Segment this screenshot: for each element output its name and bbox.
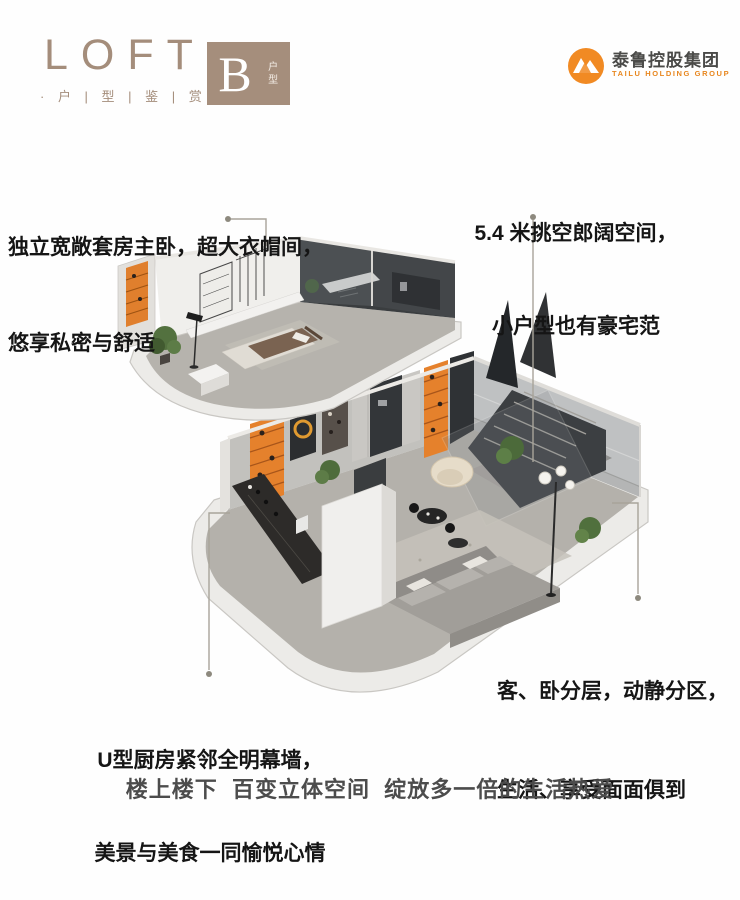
brand-subtitle: · 户 | 型 | 鉴 | 赏 · (40, 86, 200, 105)
company-name: 泰鲁控股集团 (612, 46, 720, 71)
bottom-tagline: 楼上楼下 百变立体空间 绽放多一倍的生活热爱 (0, 772, 740, 804)
annotation-line: 悠享私密与舒适 (8, 328, 323, 360)
annotation-double-height: 5.4 米挑空郎阔空间， 小户型也有豪宅范 (430, 156, 722, 373)
annotation-line: 5.4 米挑空郎阔空间， (430, 218, 722, 249)
loft-floorplan-poster: { "header": { "brand": "LOFT", "brand_su… (0, 0, 740, 829)
connector-dot (635, 595, 641, 601)
annotation-master-bedroom: 独立宽敞套房主卧，超大衣帽间， 悠享私密与舒适 (8, 168, 323, 392)
unit-type-badge: B 户型 (207, 42, 290, 105)
company-name-en: TAILU HOLDING GROUP (612, 69, 730, 78)
connector-dot (206, 671, 212, 677)
annotation-zoning: 客、卧分层，动静分区， 生活、享受面面俱到 (497, 609, 728, 840)
annotation-line: 独立宽敞套房主卧，超大衣帽间， (8, 232, 323, 264)
annotation-line: 美景与美食一同愉悦心情 (66, 838, 354, 869)
annotation-line: 小户型也有豪宅范 (430, 311, 722, 342)
annotation-line: 客、卧分层，动静分区， (497, 675, 728, 708)
unit-letter: B (218, 49, 251, 99)
loft-wordmark: LOFT (44, 34, 194, 77)
mountain-logo-icon (566, 46, 606, 86)
unit-label: 户型 (264, 61, 279, 87)
